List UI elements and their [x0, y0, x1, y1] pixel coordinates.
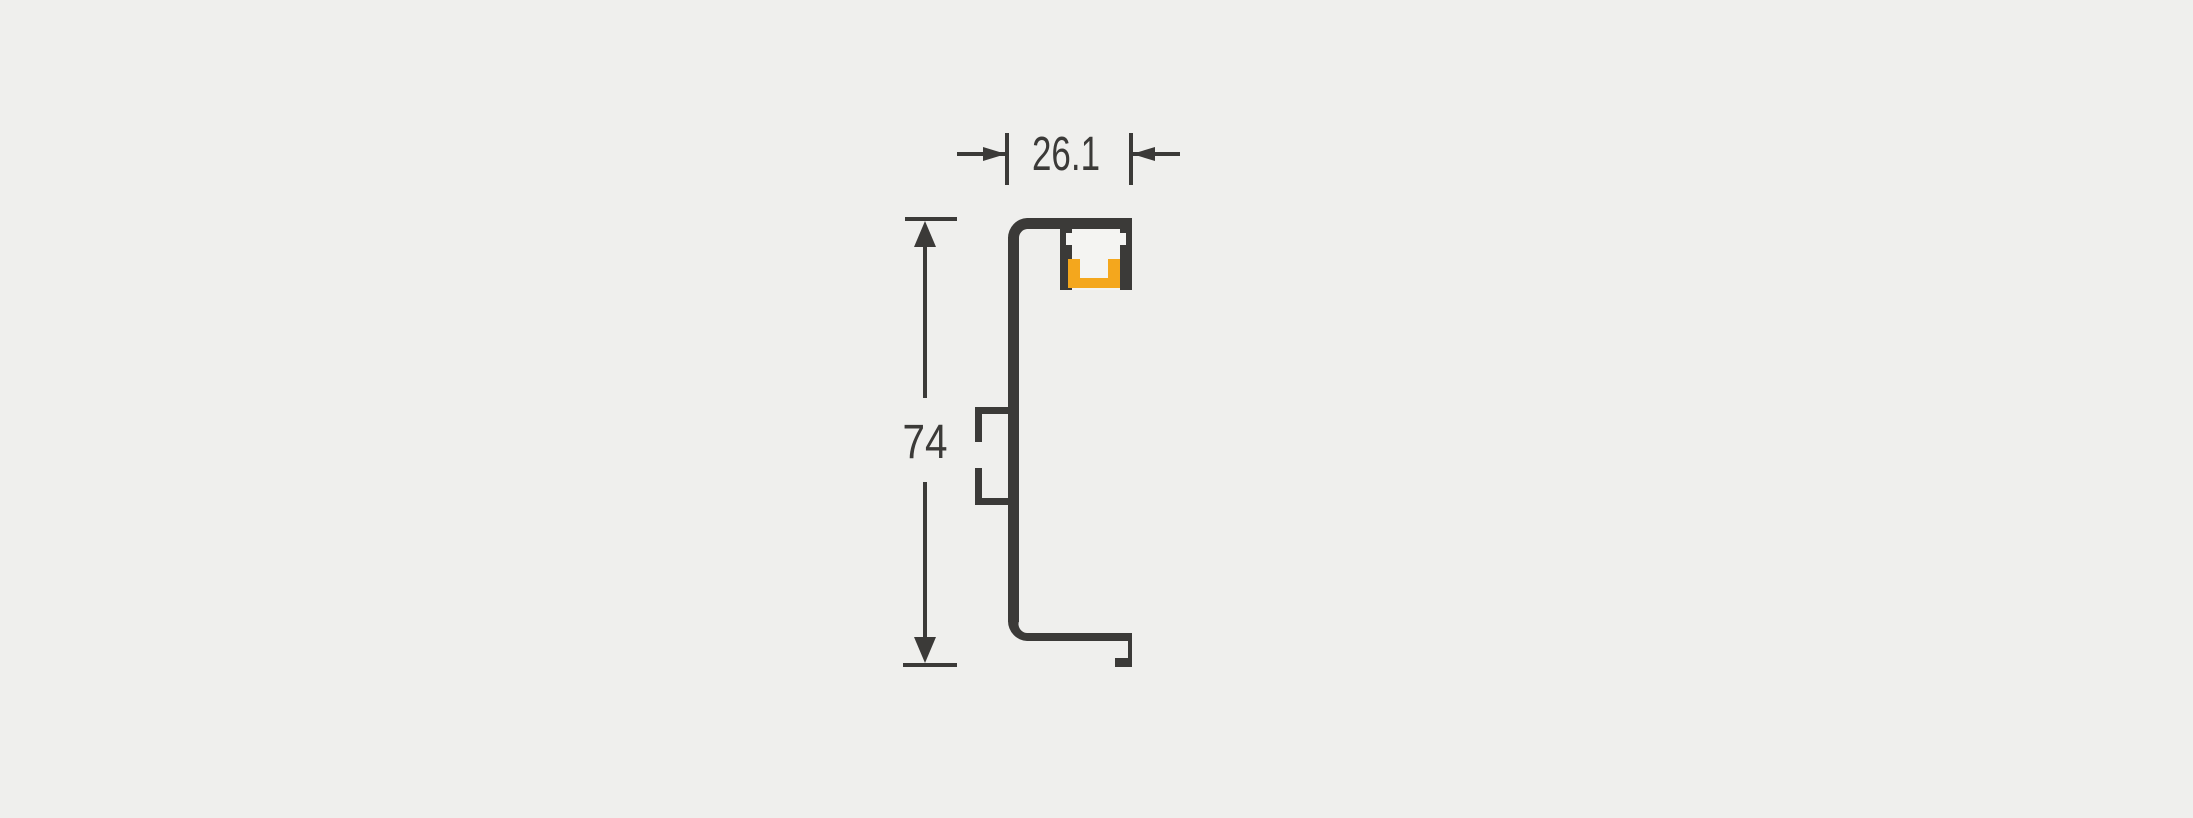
width-extension-line-right [1129, 133, 1133, 185]
drawing-canvas: 26.1 74 [0, 0, 2193, 818]
clip-bottom-arm [975, 498, 1012, 505]
profile-bottom-left-corner [1008, 621, 1027, 641]
height-dimension-value: 74 [903, 416, 948, 469]
dim-arrow-left-icon [1132, 147, 1155, 161]
height-dimension: 74 [903, 217, 958, 667]
profile-cross-section-drawing: 26.1 74 [0, 0, 2193, 818]
height-tick-top [905, 217, 957, 221]
dim-arrow-up-icon [914, 221, 936, 247]
led-channel [1060, 229, 1132, 290]
mounting-clip [975, 407, 1012, 505]
bottom-hook-foot [1115, 658, 1132, 667]
height-tick-bottom [903, 663, 957, 667]
height-dim-line-lower [923, 482, 927, 640]
diffuser-groove-right [1120, 233, 1126, 245]
width-dimension: 26.1 [957, 128, 1180, 185]
width-dimension-value: 26.1 [1032, 128, 1100, 181]
dim-arrow-down-icon [914, 637, 936, 663]
height-dim-line-upper [923, 246, 927, 398]
profile-top-left-corner [1008, 218, 1027, 238]
profile-top-flange [1027, 218, 1132, 229]
clip-upper-wall [975, 407, 982, 442]
profile-stem [1008, 237, 1019, 622]
width-extension-line-left [1005, 133, 1009, 185]
page: { "colors": { "background": "#EFEFED", "… [0, 0, 2193, 818]
diffuser-groove-left [1066, 233, 1072, 245]
profile-bottom-flange [1027, 633, 1132, 641]
dim-arrow-right-icon [983, 147, 1006, 161]
